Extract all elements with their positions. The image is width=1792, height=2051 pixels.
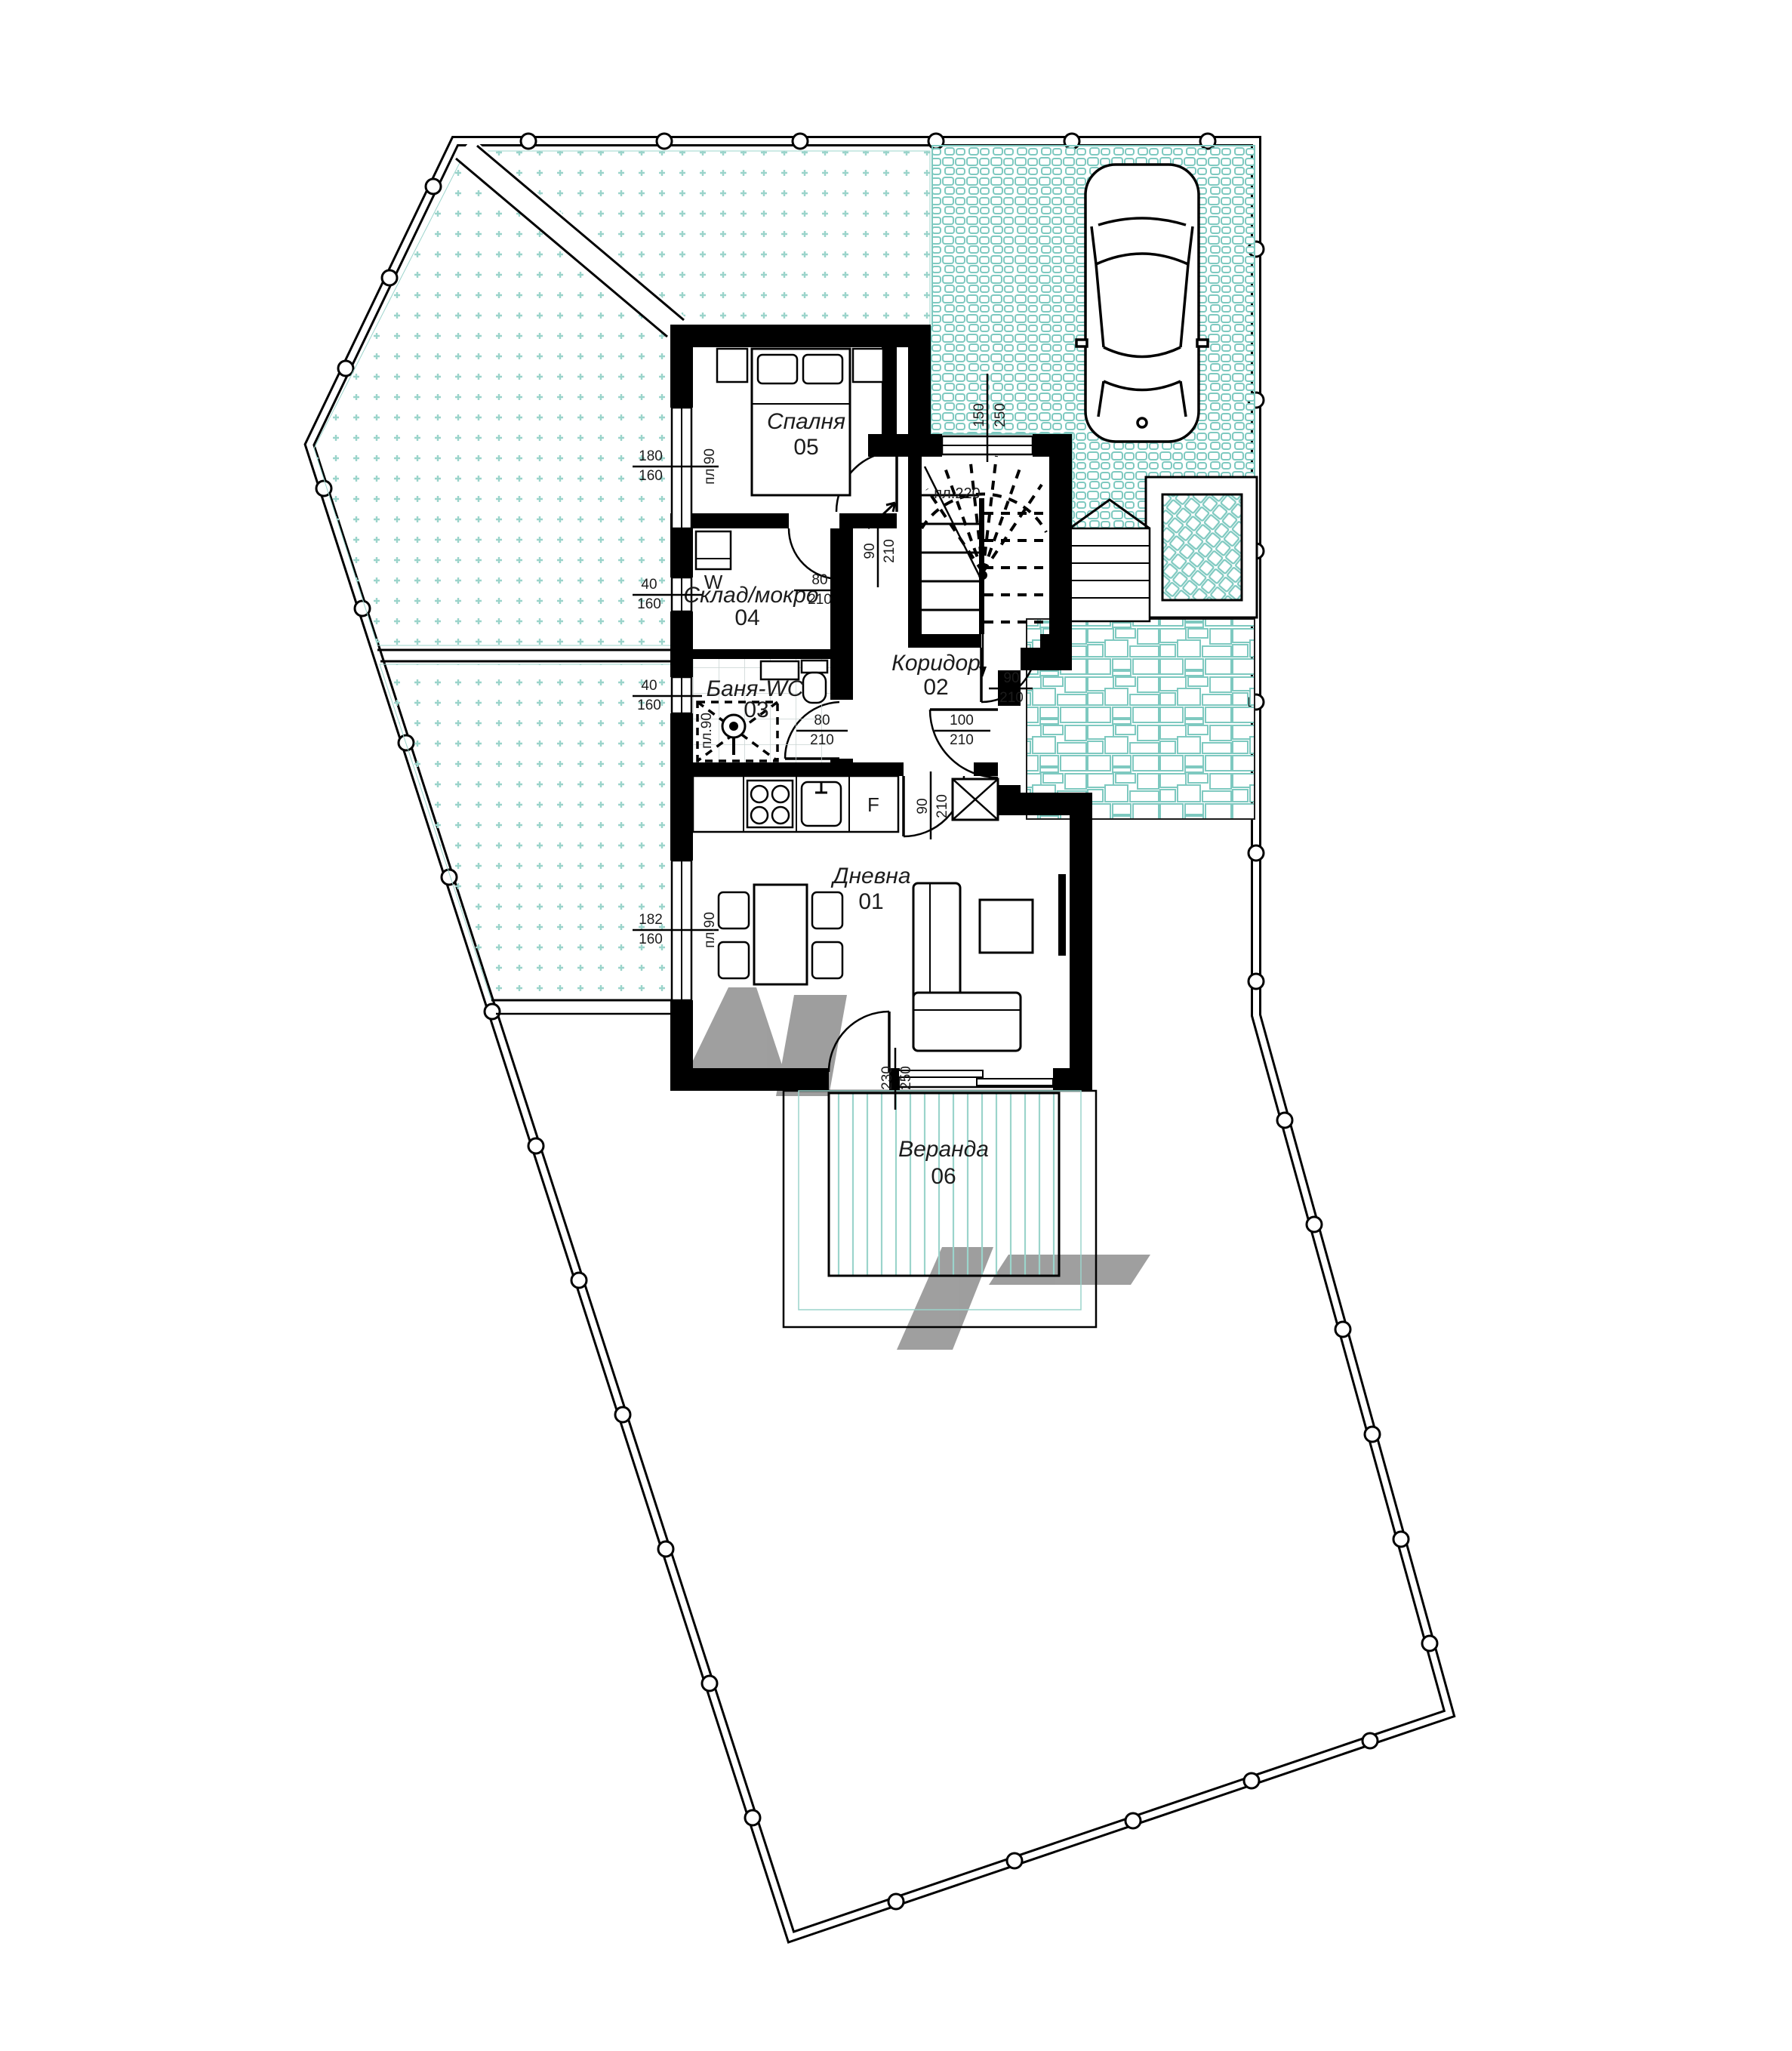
svg-text:250: 250 xyxy=(898,1066,914,1090)
svg-text:пл.90: пл.90 xyxy=(702,448,718,485)
svg-text:210: 210 xyxy=(882,539,898,563)
svg-text:180: 180 xyxy=(639,448,663,464)
svg-text:40: 40 xyxy=(641,678,657,694)
floorplan-drawing: Спалня 05 Коридор 02 Баня-WC 03 Склад/мо… xyxy=(0,0,1792,2051)
svg-text:230: 230 xyxy=(879,1066,895,1090)
label-storage-num: 04 xyxy=(734,605,759,630)
dim-shower: пл.90 xyxy=(699,713,715,749)
shaft-box xyxy=(953,779,998,820)
storage-fixtures xyxy=(696,531,731,569)
svg-text:210: 210 xyxy=(810,732,834,748)
svg-text:150: 150 xyxy=(971,403,987,427)
svg-text:210: 210 xyxy=(950,732,974,748)
svg-text:160: 160 xyxy=(639,468,663,484)
svg-text:100: 100 xyxy=(950,713,974,728)
svg-text:210: 210 xyxy=(934,794,950,818)
planter xyxy=(1146,477,1257,617)
svg-text:160: 160 xyxy=(637,698,661,713)
svg-text:40: 40 xyxy=(641,577,657,593)
veranda-slider xyxy=(898,1070,1053,1086)
svg-text:пл.90: пл.90 xyxy=(699,713,715,749)
svg-text:90: 90 xyxy=(862,543,878,559)
label-veranda: Веранда xyxy=(898,1137,989,1162)
svg-text:пл.90: пл.90 xyxy=(702,912,718,948)
garden-lower xyxy=(380,664,677,1014)
dim-entrance-door: 100 210 xyxy=(934,713,990,748)
living-furniture xyxy=(719,874,1066,1051)
svg-text:160: 160 xyxy=(637,596,661,612)
bedroom-window xyxy=(672,408,691,528)
label-stair: пл.220 xyxy=(934,485,980,502)
label-fridge: F xyxy=(867,793,879,816)
svg-text:210: 210 xyxy=(999,690,1024,706)
svg-text:80: 80 xyxy=(811,572,827,588)
car xyxy=(1076,165,1208,442)
svg-text:80: 80 xyxy=(814,713,830,728)
label-veranda-num: 06 xyxy=(931,1164,956,1189)
label-bedroom: Спалня xyxy=(767,409,845,434)
label-bath-num: 03 xyxy=(744,698,768,722)
floorplan-sheet: Спалня 05 Коридор 02 Баня-WC 03 Склад/мо… xyxy=(0,0,1792,2051)
svg-text:160: 160 xyxy=(639,932,663,947)
svg-text:90: 90 xyxy=(915,798,931,814)
label-bedroom-num: 05 xyxy=(793,435,818,460)
label-washer: W xyxy=(704,571,723,593)
svg-text:182: 182 xyxy=(639,912,663,928)
svg-text:250: 250 xyxy=(993,403,1008,427)
svg-text:210: 210 xyxy=(808,592,832,608)
svg-text:90: 90 xyxy=(1003,670,1019,686)
label-living: Дневна xyxy=(830,864,910,888)
label-corridor: Коридор xyxy=(891,651,981,676)
label-living-num: 01 xyxy=(858,889,883,914)
label-corridor-num: 02 xyxy=(923,675,948,700)
